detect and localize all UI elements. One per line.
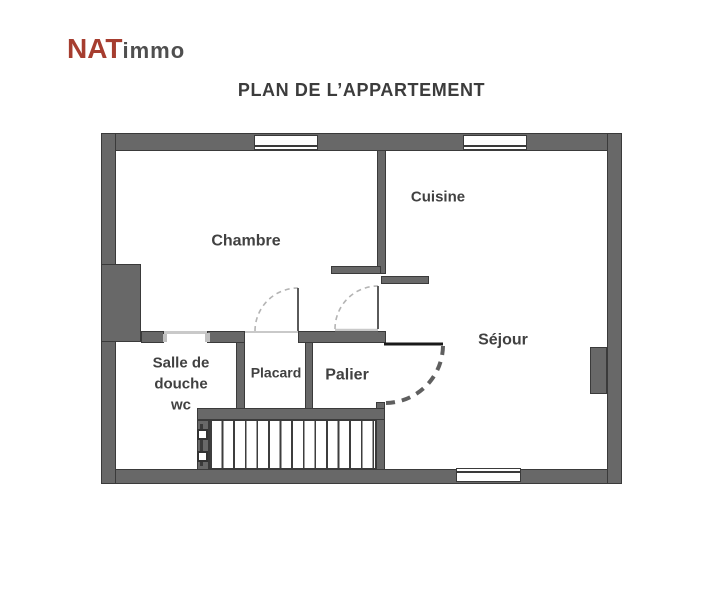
right-wall-pillar xyxy=(590,347,607,394)
outer-wall-bottom xyxy=(101,469,622,484)
wall-chambre-cuisine-divider xyxy=(377,150,386,274)
room-label-sejour: Séjour xyxy=(478,330,528,351)
wall-douche-stairs xyxy=(197,420,209,470)
stairs xyxy=(209,420,376,469)
room-label-placard: Placard xyxy=(251,363,302,384)
stairs-rail-post-top xyxy=(197,429,208,440)
window-chambre-sill xyxy=(254,146,318,150)
wall-stairs-top-bar xyxy=(197,408,385,420)
window-chambre xyxy=(254,135,318,146)
wall-stub-cuisine-side xyxy=(381,276,429,284)
wall-row-segment-left xyxy=(141,331,164,343)
room-label-palier: Palier xyxy=(325,365,369,386)
room-label-salle-de-douche: Salle de douche wc xyxy=(153,353,210,416)
room-label-chambre: Chambre xyxy=(211,231,280,252)
entrance-door-arc xyxy=(385,346,443,403)
placard-door-arc xyxy=(255,288,298,331)
floorplan: Chambre Cuisine Séjour Salle de douche w… xyxy=(0,0,725,600)
outer-wall-right xyxy=(607,133,622,484)
doorway-douche-jamb-left xyxy=(163,334,167,342)
wall-stub-chambre-side xyxy=(331,266,381,274)
window-cuisine-sill xyxy=(463,146,527,150)
window-cuisine xyxy=(463,135,527,146)
stairs-rail-post-bottom xyxy=(197,451,208,462)
doorway-douche-threshold xyxy=(164,331,207,334)
left-wall-pillar xyxy=(101,264,141,342)
outer-wall-top xyxy=(101,133,622,151)
palier-door-arc xyxy=(335,286,378,329)
room-label-cuisine: Cuisine xyxy=(411,187,465,208)
window-sejour xyxy=(456,472,521,482)
doorway-douche-jamb-right xyxy=(205,333,210,342)
doorway-placard-threshold xyxy=(245,331,298,333)
floor-plan-page: NATimmo PLAN DE L’APPARTEMENT xyxy=(0,0,725,600)
